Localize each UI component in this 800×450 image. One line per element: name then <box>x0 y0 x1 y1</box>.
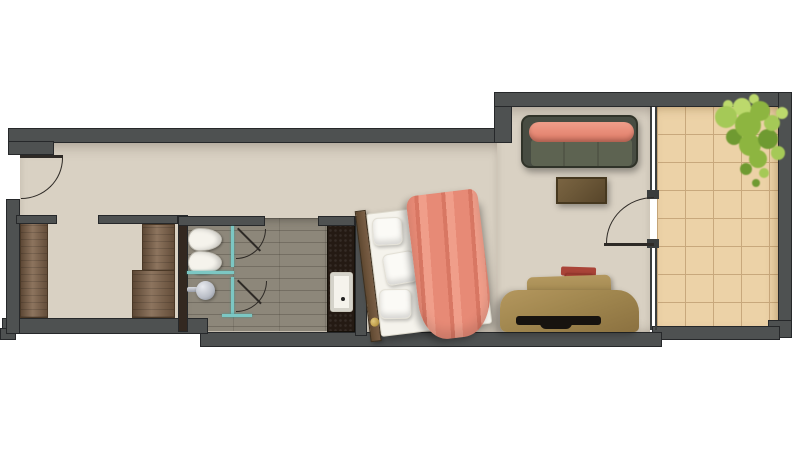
glass-partition-2 <box>187 271 234 274</box>
shower-head-icon <box>196 281 215 300</box>
bed-pillow-1 <box>372 217 403 247</box>
wall-top-left <box>8 128 500 143</box>
bed-pillow-3 <box>379 289 412 320</box>
glass-partition-1 <box>231 226 234 267</box>
wall-top-left-ledge <box>8 141 54 155</box>
glazed-wall-lower <box>650 248 657 330</box>
sink-basin <box>330 272 353 312</box>
wall-right <box>778 92 792 328</box>
floor-balcony <box>657 106 779 327</box>
sink-drain <box>341 297 345 301</box>
wardrobe-right-upper <box>142 224 175 271</box>
plant-icon <box>735 112 761 138</box>
glazed-wall-upper <box>650 107 657 190</box>
wall-bathroom-top-left <box>178 216 265 226</box>
coffee-table <box>556 177 607 204</box>
wardrobe-left <box>20 223 48 318</box>
wall-bottom-balcony <box>652 326 780 340</box>
sofa-seat <box>531 139 632 166</box>
sofa-bolster-cushion <box>529 122 634 142</box>
sofa <box>521 115 638 168</box>
glass-partition-3 <box>231 277 234 317</box>
balcony-door-leaf <box>604 243 654 246</box>
glass-partition-4 <box>222 314 252 317</box>
wall-alcove-stub-right <box>98 215 178 224</box>
wall-alcove-stub-left <box>16 215 57 224</box>
bed <box>354 192 498 343</box>
desk-slot-bump <box>540 323 572 329</box>
wall-top-right <box>494 92 792 107</box>
wall-bathroom-top-right <box>318 216 355 226</box>
wardrobe-right-lower <box>132 270 175 318</box>
floor-plan <box>0 0 800 450</box>
